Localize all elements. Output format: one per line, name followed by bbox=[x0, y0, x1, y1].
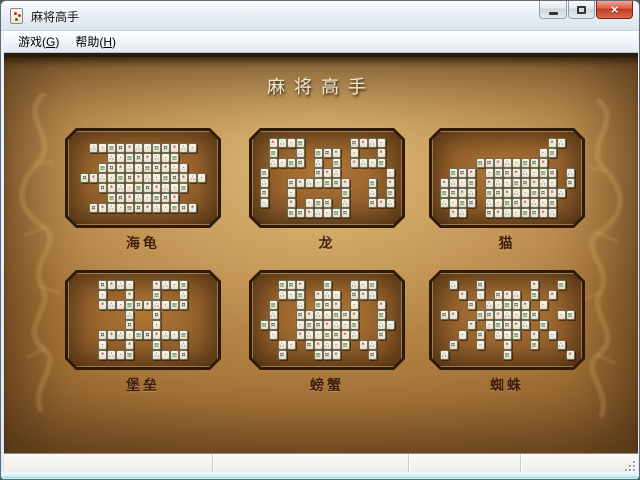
window-controls: × bbox=[538, 1, 633, 19]
mini-mahjong-tile: ≡ bbox=[458, 198, 467, 208]
layout-label-cat: 猫 bbox=[429, 233, 585, 253]
mini-mahjong-tile: * bbox=[107, 280, 116, 290]
mini-mahjong-tile: ≡ bbox=[170, 203, 179, 213]
mini-mahjong-tile: ≡ bbox=[125, 350, 134, 360]
mini-mahjong-tile: ¤ bbox=[179, 350, 188, 360]
mini-mahjong-tile: * bbox=[494, 158, 503, 168]
layout-cell-fortress: ¤*∴·*∴·≡·*≡∴*∴·≡¤*∴·≡¤∴¤¤·¤*∴·≡¤*∴·≡·*≡∴… bbox=[65, 270, 221, 395]
mini-mahjong-tile: · bbox=[152, 320, 161, 330]
mini-mahjong-tile: ∴ bbox=[314, 208, 323, 218]
mini-mahjong-tile: ≡ bbox=[548, 148, 557, 158]
mini-mahjong-tile: ∴ bbox=[485, 198, 494, 208]
mini-mahjong-tile: ≡ bbox=[566, 310, 575, 320]
mini-mahjong-tile: * bbox=[314, 340, 323, 350]
mini-mahjong-tile: * bbox=[530, 178, 539, 188]
mini-mahjong-tile: * bbox=[449, 310, 458, 320]
mini-mahjong-tile: ≡ bbox=[134, 183, 143, 193]
mini-mahjong-tile: · bbox=[476, 290, 485, 300]
mini-mahjong-tile: ≡ bbox=[539, 168, 548, 178]
mini-mahjong-tile: ∴ bbox=[116, 280, 125, 290]
mini-mahjong-tile: * bbox=[386, 178, 395, 188]
mini-mahjong-tile: ¤ bbox=[323, 300, 332, 310]
mini-mahjong-tile: * bbox=[539, 158, 548, 168]
mini-mahjong-tile: · bbox=[107, 173, 116, 183]
mini-mahjong-tile: · bbox=[530, 168, 539, 178]
mini-mahjong-tile: ∴ bbox=[485, 300, 494, 310]
mini-mahjong-tile: ≡ bbox=[377, 310, 386, 320]
close-button[interactable]: × bbox=[596, 1, 633, 19]
mini-mahjong-tile: · bbox=[305, 198, 314, 208]
mini-mahjong-tile: ∴ bbox=[314, 310, 323, 320]
mini-mahjong-tile: ∴ bbox=[116, 183, 125, 193]
mini-mahjong-tile: ∴ bbox=[170, 163, 179, 173]
mini-mahjong-tile: ∴ bbox=[530, 198, 539, 208]
layout-button-cat[interactable]: *∴·≡≡¤*∴·≡¤*≡¤*·≡¤*∴·≡¤∴*∴·≡*∴·≡¤*∴·¤≡¤*… bbox=[429, 128, 585, 228]
mini-mahjong-tile: * bbox=[503, 340, 512, 350]
mini-mahjong-tile: · bbox=[368, 158, 377, 168]
menubar: 游戏(G) 帮助(H) bbox=[4, 31, 638, 53]
mini-mahjong-tile: * bbox=[359, 340, 368, 350]
mini-mahjong-tile: ∴ bbox=[260, 178, 269, 188]
mini-mahjong-tile: * bbox=[125, 340, 134, 350]
mini-mahjong-tile: ∴ bbox=[521, 320, 530, 330]
mini-mahjong-tile: ∴ bbox=[269, 310, 278, 320]
mini-mahjong-tile: ∴ bbox=[350, 280, 359, 290]
mini-mahjong-tile: * bbox=[521, 300, 530, 310]
mini-mahjong-tile: ¤ bbox=[161, 143, 170, 153]
mini-mahjong-tile: ≡ bbox=[314, 198, 323, 208]
mini-mahjong-tile: ≡ bbox=[494, 168, 503, 178]
mini-mahjong-tile: * bbox=[359, 290, 368, 300]
mini-mahjong-tile: ≡ bbox=[170, 300, 179, 310]
mini-mahjong-tile: ≡ bbox=[449, 168, 458, 178]
mini-mahjong-tile: ¤ bbox=[476, 330, 485, 340]
mini-mahjong-tile: ≡ bbox=[503, 300, 512, 310]
mini-mahjong-tile: ¤ bbox=[152, 163, 161, 173]
mini-mahjong-tile: ≡ bbox=[170, 350, 179, 360]
titlebar[interactable]: 麻将高手 × bbox=[1, 1, 640, 31]
mini-mahjong-tile: · bbox=[548, 178, 557, 188]
mini-mahjong-tile: ¤ bbox=[530, 208, 539, 218]
mini-mahjong-tile: · bbox=[521, 188, 530, 198]
mini-mahjong-tile: ≡ bbox=[125, 203, 134, 213]
maximize-icon bbox=[577, 6, 586, 14]
mini-mahjong-tile: ≡ bbox=[539, 320, 548, 330]
mini-mahjong-tile: * bbox=[161, 163, 170, 173]
mini-mahjong-tile: ¤ bbox=[503, 320, 512, 330]
mini-mahjong-tile: ≡ bbox=[476, 158, 485, 168]
mini-mahjong-tile: ∴ bbox=[548, 208, 557, 218]
mini-mahjong-tile: ¤ bbox=[566, 178, 575, 188]
mini-mahjong-tile: ∴ bbox=[179, 340, 188, 350]
maximize-button[interactable] bbox=[568, 1, 595, 19]
mini-mahjong-tile: · bbox=[323, 310, 332, 320]
mini-mahjong-tile: ≡ bbox=[332, 158, 341, 168]
minimize-icon bbox=[549, 12, 558, 15]
mini-mahjong-tile: ¤ bbox=[341, 310, 350, 320]
mini-mahjong-tile: * bbox=[323, 168, 332, 178]
mini-mahjong-tile: ≡ bbox=[530, 340, 539, 350]
mini-mahjong-tile: ∴ bbox=[98, 173, 107, 183]
mini-mahjong-tile: * bbox=[116, 163, 125, 173]
page-title: 麻将高手 bbox=[4, 73, 638, 99]
mini-mahjong-tile: ∴ bbox=[107, 153, 116, 163]
mini-mahjong-tile: ∴ bbox=[539, 178, 548, 188]
mini-mahjong-tile: * bbox=[458, 290, 467, 300]
mini-mahjong-tile: ¤ bbox=[305, 340, 314, 350]
mini-mahjong-tile: ≡ bbox=[260, 320, 269, 330]
mini-mahjong-tile: ∴ bbox=[107, 203, 116, 213]
mini-mahjong-tile: ≡ bbox=[314, 148, 323, 158]
mini-mahjong-tile: ≡ bbox=[287, 208, 296, 218]
mini-mahjong-tile: * bbox=[350, 310, 359, 320]
mini-mahjong-tile: * bbox=[494, 310, 503, 320]
mini-mahjong-tile: · bbox=[539, 300, 548, 310]
mini-mahjong-tile: · bbox=[512, 310, 521, 320]
mini-mahjong-tile: ≡ bbox=[368, 178, 377, 188]
mini-mahjong-tile: ¤ bbox=[449, 188, 458, 198]
mini-mahjong-tile: · bbox=[125, 330, 134, 340]
mini-mahjong-tile: ≡ bbox=[125, 300, 134, 310]
mini-mahjong-tile: · bbox=[485, 320, 494, 330]
mini-mahjong-tile: * bbox=[179, 173, 188, 183]
mini-mahjong-tile: ¤ bbox=[485, 310, 494, 320]
mini-mahjong-tile: ≡ bbox=[323, 280, 332, 290]
layout-label-crab: 螃蟹 bbox=[249, 375, 405, 395]
mini-mahjong-tile: * bbox=[269, 138, 278, 148]
mini-mahjong-tile: ∴ bbox=[557, 188, 566, 198]
mini-mahjong-tile: · bbox=[116, 153, 125, 163]
mini-mahjong-tile: ¤ bbox=[314, 168, 323, 178]
mini-mahjong-tile: ¤ bbox=[467, 198, 476, 208]
mini-mahjong-tile: ¤ bbox=[332, 330, 341, 340]
mini-mahjong-tile: ≡ bbox=[512, 330, 521, 340]
mini-mahjong-tile: ¤ bbox=[296, 208, 305, 218]
mini-mahjong-tile: ≡ bbox=[170, 153, 179, 163]
mini-mahjong-tile: * bbox=[377, 198, 386, 208]
mini-mahjong-tile: * bbox=[341, 178, 350, 188]
mini-mahjong-tile: * bbox=[152, 330, 161, 340]
layout-cell-cat: *∴·≡≡¤*∴·≡¤*≡¤*·≡¤*∴·≡¤∴*∴·≡*∴·≡¤*∴·¤≡¤*… bbox=[429, 128, 585, 253]
mini-mahjong-tile: ∴ bbox=[557, 340, 566, 350]
mini-mahjong-tile: ∴ bbox=[503, 158, 512, 168]
mini-mahjong-tile: ∴ bbox=[449, 280, 458, 290]
mini-mahjong-tile: · bbox=[314, 330, 323, 340]
mini-mahjong-tile: · bbox=[494, 198, 503, 208]
mini-mahjong-tile: ¤ bbox=[368, 350, 377, 360]
mini-mahjong-tile: ≡ bbox=[179, 183, 188, 193]
mini-mahjong-tile: ≡ bbox=[503, 350, 512, 360]
mini-mahjong-tile: ≡ bbox=[377, 158, 386, 168]
mini-mahjong-tile: ∴ bbox=[332, 168, 341, 178]
mini-mahjong-tile: ∴ bbox=[566, 168, 575, 178]
mini-mahjong-tile: ¤ bbox=[143, 183, 152, 193]
mini-mahjong-tile: ¤ bbox=[440, 310, 449, 320]
mini-mahjong-tile: ≡ bbox=[125, 153, 134, 163]
mini-mahjong-tile: ≡ bbox=[152, 143, 161, 153]
mini-mahjong-tile: ¤ bbox=[494, 290, 503, 300]
mini-mahjong-tile: * bbox=[152, 280, 161, 290]
layout-label-fortress: 堡垒 bbox=[65, 375, 221, 395]
layout-button-fortress[interactable]: ¤*∴·*∴·≡·*≡∴*∴·≡¤*∴·≡¤∴¤¤·¤*∴·≡¤*∴·≡·*≡∴… bbox=[65, 270, 221, 370]
mini-mahjong-tile: ∴ bbox=[296, 148, 305, 158]
mini-mahjong-tile: · bbox=[350, 148, 359, 158]
mini-mahjong-tile: ≡ bbox=[107, 143, 116, 153]
mini-mahjong-tile: ∴ bbox=[314, 158, 323, 168]
mini-mahjong-tile: · bbox=[503, 330, 512, 340]
mini-mahjong-tile: * bbox=[125, 193, 134, 203]
mini-mahjong-tile: · bbox=[197, 173, 206, 183]
mini-mahjong-tile: ¤ bbox=[368, 198, 377, 208]
mini-mahjong-tile: ≡ bbox=[341, 188, 350, 198]
mini-mahjong-tile: ¤ bbox=[539, 188, 548, 198]
mini-mahjong-tile: · bbox=[350, 300, 359, 310]
mini-mahjong-tile: * bbox=[125, 290, 134, 300]
mini-mahjong-tile: ¤ bbox=[323, 148, 332, 158]
close-icon: × bbox=[611, 3, 619, 16]
mini-mahjong-tile: ¤ bbox=[530, 158, 539, 168]
mini-mahjong-tile: · bbox=[512, 208, 521, 218]
mini-mahjong-tile: ¤ bbox=[107, 163, 116, 173]
mini-mahjong-tile: ∴ bbox=[296, 300, 305, 310]
mini-mahjong-tile: ¤ bbox=[161, 193, 170, 203]
mini-mahjong-tile: ¤ bbox=[323, 350, 332, 360]
mini-mahjong-tile: · bbox=[170, 330, 179, 340]
mini-mahjong-tile: ≡ bbox=[296, 138, 305, 148]
mini-mahjong-tile: ≡ bbox=[152, 193, 161, 203]
mini-mahjong-tile: ∴ bbox=[350, 330, 359, 340]
mini-mahjong-tile: ∴ bbox=[449, 178, 458, 188]
mini-mahjong-tile: · bbox=[449, 198, 458, 208]
mini-mahjong-tile: ∴ bbox=[278, 340, 287, 350]
mini-mahjong-tile: * bbox=[548, 188, 557, 198]
mini-mahjong-tile: · bbox=[161, 300, 170, 310]
mini-mahjong-tile: · bbox=[116, 300, 125, 310]
mini-mahjong-tile: · bbox=[359, 280, 368, 290]
mini-mahjong-tile: ∴ bbox=[377, 320, 386, 330]
mini-mahjong-tile: ≡ bbox=[512, 178, 521, 188]
mini-mahjong-tile: ≡ bbox=[296, 290, 305, 300]
mini-mahjong-tile: · bbox=[296, 320, 305, 330]
mini-mahjong-tile: ¤ bbox=[80, 173, 89, 183]
mini-mahjong-tile: ≡ bbox=[521, 158, 530, 168]
mini-mahjong-tile: ∴ bbox=[278, 138, 287, 148]
mini-mahjong-tile: * bbox=[107, 183, 116, 193]
mini-mahjong-tile: ∴ bbox=[278, 290, 287, 300]
mini-mahjong-tile: * bbox=[143, 300, 152, 310]
mini-mahjong-tile: * bbox=[485, 178, 494, 188]
status-bar bbox=[4, 453, 638, 474]
mini-mahjong-tile: * bbox=[125, 143, 134, 153]
mini-mahjong-tile: ¤ bbox=[125, 173, 134, 183]
mini-mahjong-tile: ¤ bbox=[296, 310, 305, 320]
window-bottom-edge bbox=[1, 472, 639, 479]
mini-mahjong-tile: · bbox=[332, 340, 341, 350]
mini-mahjong-tile: ∴ bbox=[89, 143, 98, 153]
mini-mahjong-tile: * bbox=[287, 198, 296, 208]
mini-mahjong-tile: ¤ bbox=[449, 340, 458, 350]
mini-mahjong-tile: · bbox=[539, 198, 548, 208]
mini-mahjong-tile: ∴ bbox=[179, 290, 188, 300]
mini-mahjong-tile: * bbox=[98, 350, 107, 360]
mini-mahjong-tile: ∴ bbox=[161, 330, 170, 340]
mini-mahjong-tile: ¤ bbox=[98, 280, 107, 290]
mini-mahjong-tile: · bbox=[548, 330, 557, 340]
mini-mahjong-tile: ∴ bbox=[161, 280, 170, 290]
mini-mahjong-tile: · bbox=[161, 203, 170, 213]
layout-cell-spider: ∴¤*≡*·¤*∴≡*¤∴·≡¤*·¤*≡¤*∴·≡¤·≡*·≡¤*∴≡·¤∴·… bbox=[429, 270, 585, 395]
mini-mahjong-tile: ≡ bbox=[287, 158, 296, 168]
mini-mahjong-tile: * bbox=[296, 280, 305, 290]
resize-grip[interactable] bbox=[623, 459, 636, 472]
mini-mahjong-tile: ∴ bbox=[440, 350, 449, 360]
mini-mahjong-tile: · bbox=[98, 143, 107, 153]
layout-button-spider[interactable]: ∴¤*≡*·¤*∴≡*¤∴·≡¤*·¤*≡¤*∴·≡¤·≡*·≡¤*∴≡·¤∴·… bbox=[429, 270, 585, 370]
mini-mahjong-tile: · bbox=[458, 330, 467, 340]
layout-button-crab[interactable]: ≡¤*≡∴·≡∴·≡*∴·¤*∴≡∴≡¤*·*∴¤*∴·≡¤*≡≡¤·≡¤*∴·… bbox=[249, 270, 405, 370]
status-pane-4 bbox=[521, 454, 638, 474]
mini-mahjong-tile: ¤ bbox=[548, 168, 557, 178]
mini-mahjong-tile: ∴ bbox=[116, 330, 125, 340]
mini-mahjong-tile: · bbox=[341, 320, 350, 330]
mini-mahjong-tile: * bbox=[341, 330, 350, 340]
window-title: 麻将高手 bbox=[31, 8, 79, 25]
mini-mahjong-tile: ¤ bbox=[485, 158, 494, 168]
mini-mahjong-tile: ≡ bbox=[143, 163, 152, 173]
layout-preview-fortress: ¤*∴·*∴·≡·*≡∴*∴·≡¤*∴·≡¤∴¤¤·¤*∴·≡¤*∴·≡·*≡∴… bbox=[68, 273, 218, 367]
mini-mahjong-tile: * bbox=[350, 158, 359, 168]
mini-mahjong-tile: · bbox=[260, 198, 269, 208]
layout-cell-turtle: ∴·≡¤*∴·≡¤*∴·∴·≡¤*∴·≡≡¤*∴·≡¤*∴·¤*∴·≡¤*∴·≡… bbox=[65, 128, 221, 253]
mini-mahjong-tile: ∴ bbox=[269, 158, 278, 168]
mini-mahjong-tile: ¤ bbox=[125, 320, 134, 330]
mini-mahjong-tile: ¤ bbox=[350, 138, 359, 148]
mini-mahjong-tile: ∴ bbox=[152, 350, 161, 360]
mini-mahjong-tile: * bbox=[143, 153, 152, 163]
mini-mahjong-tile: ≡ bbox=[179, 280, 188, 290]
mini-mahjong-tile: ¤ bbox=[179, 203, 188, 213]
mini-mahjong-tile: * bbox=[98, 300, 107, 310]
mini-mahjong-tile: · bbox=[476, 340, 485, 350]
mini-mahjong-tile: * bbox=[467, 320, 476, 330]
mini-mahjong-tile: ∴ bbox=[521, 168, 530, 178]
layout-label-spider: 蜘蛛 bbox=[429, 375, 585, 395]
mini-mahjong-tile: · bbox=[458, 178, 467, 188]
mini-mahjong-tile: ∴ bbox=[368, 138, 377, 148]
mini-mahjong-tile: ∴ bbox=[305, 178, 314, 188]
mini-mahjong-tile: ¤ bbox=[341, 208, 350, 218]
mini-mahjong-tile: ∴ bbox=[332, 320, 341, 330]
mini-mahjong-tile: · bbox=[125, 280, 134, 290]
mini-mahjong-tile: ≡ bbox=[440, 188, 449, 198]
mini-mahjong-tile: ∴ bbox=[152, 300, 161, 310]
minimize-button[interactable] bbox=[539, 1, 567, 19]
mini-mahjong-tile: ¤ bbox=[98, 183, 107, 193]
mini-mahjong-tile: · bbox=[170, 183, 179, 193]
mini-mahjong-tile: · bbox=[161, 153, 170, 163]
layout-button-turtle[interactable]: ∴·≡¤*∴·≡¤*∴·∴·≡¤*∴·≡≡¤*∴·≡¤*∴·¤*∴·≡¤*∴·≡… bbox=[65, 128, 221, 228]
mini-mahjong-tile: ¤ bbox=[260, 188, 269, 198]
mini-mahjong-tile: * bbox=[332, 350, 341, 360]
mini-mahjong-tile: ∴ bbox=[134, 143, 143, 153]
mini-mahjong-tile: * bbox=[440, 178, 449, 188]
mini-mahjong-tile: ≡ bbox=[134, 330, 143, 340]
mini-mahjong-tile: ∴ bbox=[494, 330, 503, 340]
mahjong-tile-icon bbox=[10, 8, 23, 24]
mini-mahjong-tile: ≡ bbox=[161, 173, 170, 183]
mini-mahjong-tile: ∴ bbox=[494, 178, 503, 188]
mini-mahjong-tile: ¤ bbox=[494, 188, 503, 198]
mini-mahjong-tile: · bbox=[386, 320, 395, 330]
mini-mahjong-tile: ≡ bbox=[557, 280, 566, 290]
mini-mahjong-tile: · bbox=[170, 280, 179, 290]
mini-mahjong-tile: * bbox=[107, 330, 116, 340]
mini-mahjong-tile: · bbox=[323, 208, 332, 218]
mini-mahjong-tile: ≡ bbox=[98, 163, 107, 173]
mini-mahjong-tile: * bbox=[377, 300, 386, 310]
mini-mahjong-tile: ≡ bbox=[530, 188, 539, 198]
layout-cell-dragon: *∴·≡¤*∴·≡∴≡¤*·*∴·≡¤∴≡*∴·≡≡¤*∴·∴¤*∴·≡¤*≡*… bbox=[249, 128, 405, 253]
status-pane-2 bbox=[213, 454, 409, 474]
mini-mahjong-tile: ¤ bbox=[287, 178, 296, 188]
mini-mahjong-tile: ¤ bbox=[476, 280, 485, 290]
mini-mahjong-tile: ¤ bbox=[116, 143, 125, 153]
layout-cell-crab: ≡¤*≡∴·≡∴·≡*∴·¤*∴≡∴≡¤*·*∴¤*∴·≡¤*≡≡¤·≡¤*∴·… bbox=[249, 270, 405, 395]
mini-mahjong-tile: ¤ bbox=[287, 280, 296, 290]
mini-mahjong-tile: ∴ bbox=[161, 183, 170, 193]
menu-help[interactable]: 帮助(H) bbox=[67, 30, 124, 53]
mini-mahjong-tile: ≡ bbox=[116, 173, 125, 183]
layout-preview-dragon: *∴·≡¤*∴·≡∴≡¤*·*∴·≡¤∴≡*∴·≡≡¤*∴·∴¤*∴·≡¤*≡*… bbox=[252, 131, 402, 225]
mini-mahjong-tile: ¤ bbox=[179, 300, 188, 310]
mini-mahjong-tile: * bbox=[494, 208, 503, 218]
mini-mahjong-tile: * bbox=[170, 193, 179, 203]
mini-mahjong-tile: ∴ bbox=[143, 173, 152, 183]
mini-mahjong-tile: ∴ bbox=[440, 198, 449, 208]
mini-mahjong-tile: ≡ bbox=[485, 188, 494, 198]
mini-mahjong-tile: ≡ bbox=[107, 193, 116, 203]
layout-button-dragon[interactable]: *∴·≡¤*∴·≡∴≡¤*·*∴·≡¤∴≡*∴·≡≡¤*∴·∴¤*∴·≡¤*≡*… bbox=[249, 128, 405, 228]
mini-mahjong-tile: ≡ bbox=[341, 340, 350, 350]
mini-mahjong-tile: * bbox=[566, 350, 575, 360]
mini-mahjong-tile: * bbox=[359, 138, 368, 148]
layout-label-dragon: 龙 bbox=[249, 233, 405, 253]
mini-mahjong-tile: ∴ bbox=[512, 290, 521, 300]
mini-mahjong-tile: · bbox=[98, 340, 107, 350]
mini-mahjong-tile: * bbox=[449, 208, 458, 218]
mini-mahjong-tile: · bbox=[98, 290, 107, 300]
mini-mahjong-tile: ≡ bbox=[323, 178, 332, 188]
mini-mahjong-tile: · bbox=[143, 143, 152, 153]
layout-label-turtle: 海龟 bbox=[65, 233, 221, 253]
mini-mahjong-tile: · bbox=[314, 178, 323, 188]
mini-mahjong-tile: ∴ bbox=[368, 188, 377, 198]
mini-mahjong-tile: * bbox=[296, 330, 305, 340]
mini-mahjong-tile: · bbox=[161, 350, 170, 360]
mini-mahjong-tile: * bbox=[305, 208, 314, 218]
mini-mahjong-tile: * bbox=[305, 310, 314, 320]
menu-game[interactable]: 游戏(G) bbox=[10, 30, 67, 53]
mini-mahjong-tile: ¤ bbox=[350, 290, 359, 300]
mini-mahjong-tile: ≡ bbox=[476, 310, 485, 320]
mini-mahjong-tile: ¤ bbox=[467, 300, 476, 310]
mini-mahjong-tile: ¤ bbox=[269, 320, 278, 330]
mini-mahjong-tile: · bbox=[539, 148, 548, 158]
mini-mahjong-tile: * bbox=[548, 138, 557, 148]
status-pane-3 bbox=[409, 454, 521, 474]
mini-mahjong-tile: ¤ bbox=[530, 310, 539, 320]
mini-mahjong-tile: ¤ bbox=[296, 158, 305, 168]
